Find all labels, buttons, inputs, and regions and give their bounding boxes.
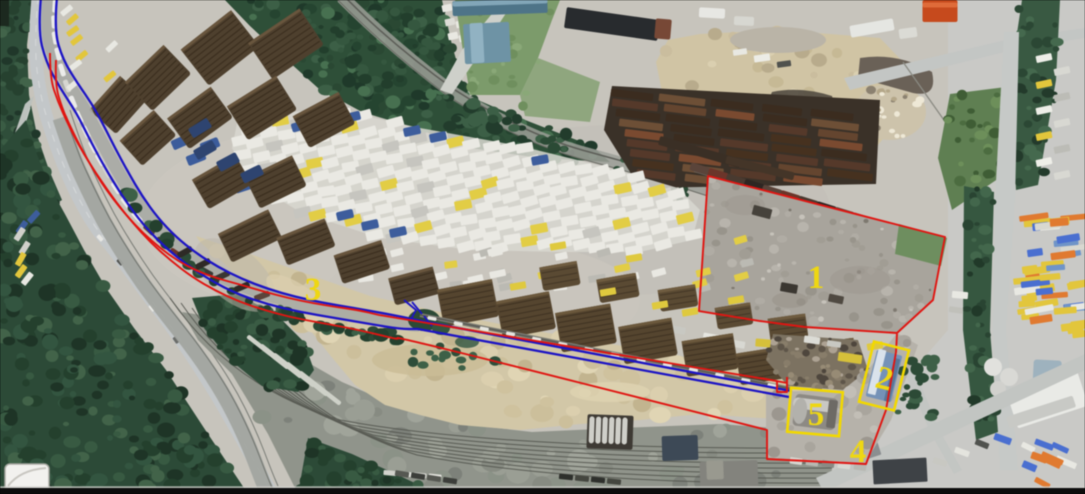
svg-text:1: 1	[808, 260, 825, 296]
svg-text:3: 3	[305, 272, 322, 308]
svg-text:4: 4	[850, 434, 867, 470]
svg-text:5: 5	[808, 397, 825, 433]
